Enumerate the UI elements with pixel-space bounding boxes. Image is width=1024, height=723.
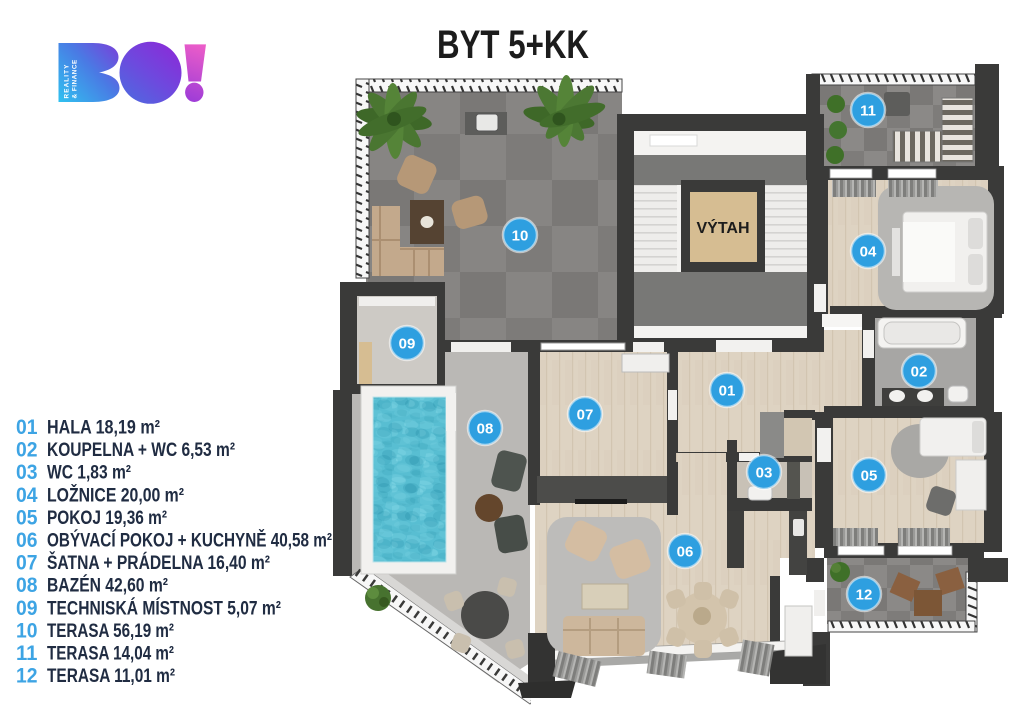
svg-text:05: 05 xyxy=(16,505,38,529)
svg-text:12: 12 xyxy=(856,587,873,604)
svg-text:& FINANCE: & FINANCE xyxy=(72,59,79,99)
svg-text:BAZÉN 42,60 m²: BAZÉN 42,60 m² xyxy=(47,574,168,597)
svg-text:11: 11 xyxy=(16,641,38,665)
svg-text:10: 10 xyxy=(16,618,38,642)
svg-text:04: 04 xyxy=(860,244,877,261)
svg-text:TERASA 56,19 m²: TERASA 56,19 m² xyxy=(47,620,174,642)
svg-text:OBÝVACÍ POKOJ + KUCHYNĚ 40,58: OBÝVACÍ POKOJ + KUCHYNĚ 40,58 m² xyxy=(47,528,332,552)
svg-text:ŠATNA + PRÁDELNA 16,40 m²: ŠATNA + PRÁDELNA 16,40 m² xyxy=(47,550,270,574)
svg-text:VÝTAH: VÝTAH xyxy=(696,218,749,237)
svg-text:09: 09 xyxy=(399,336,416,353)
svg-text:TECHNISKÁ MÍSTNOST 5,07 m²: TECHNISKÁ MÍSTNOST 5,07 m² xyxy=(47,596,281,619)
svg-text:05: 05 xyxy=(861,468,878,485)
svg-text:POKOJ 19,36 m²: POKOJ 19,36 m² xyxy=(47,507,167,529)
svg-text:04: 04 xyxy=(16,483,38,507)
svg-text:03: 03 xyxy=(16,460,38,484)
svg-text:TERASA 14,04 m²: TERASA 14,04 m² xyxy=(47,643,174,665)
svg-text:02: 02 xyxy=(16,438,38,462)
svg-text:WC 1,83 m²: WC 1,83 m² xyxy=(47,462,131,484)
svg-text:09: 09 xyxy=(16,596,38,620)
svg-text:06: 06 xyxy=(677,544,694,561)
svg-text:BYT 5+KK: BYT 5+KK xyxy=(437,23,589,67)
svg-text:06: 06 xyxy=(16,528,38,552)
svg-text:LOŽNICE 20,00 m²: LOŽNICE 20,00 m² xyxy=(47,482,184,506)
svg-text:08: 08 xyxy=(16,573,38,597)
svg-text:10: 10 xyxy=(512,228,529,245)
svg-text:02: 02 xyxy=(911,364,928,381)
svg-text:01: 01 xyxy=(16,415,38,439)
svg-text:TERASA 11,01 m²: TERASA 11,01 m² xyxy=(47,665,175,687)
svg-text:KOUPELNA + WC 6,53 m²: KOUPELNA + WC 6,53 m² xyxy=(47,439,235,461)
svg-text:07: 07 xyxy=(577,407,594,424)
svg-text:07: 07 xyxy=(16,551,38,575)
svg-text:HALA 18,19 m²: HALA 18,19 m² xyxy=(47,417,160,439)
svg-text:08: 08 xyxy=(477,421,494,438)
svg-text:11: 11 xyxy=(860,103,876,120)
svg-text:12: 12 xyxy=(16,664,38,688)
svg-text:REALITY: REALITY xyxy=(64,63,71,98)
svg-text:03: 03 xyxy=(756,465,773,482)
svg-text:01: 01 xyxy=(719,383,736,400)
